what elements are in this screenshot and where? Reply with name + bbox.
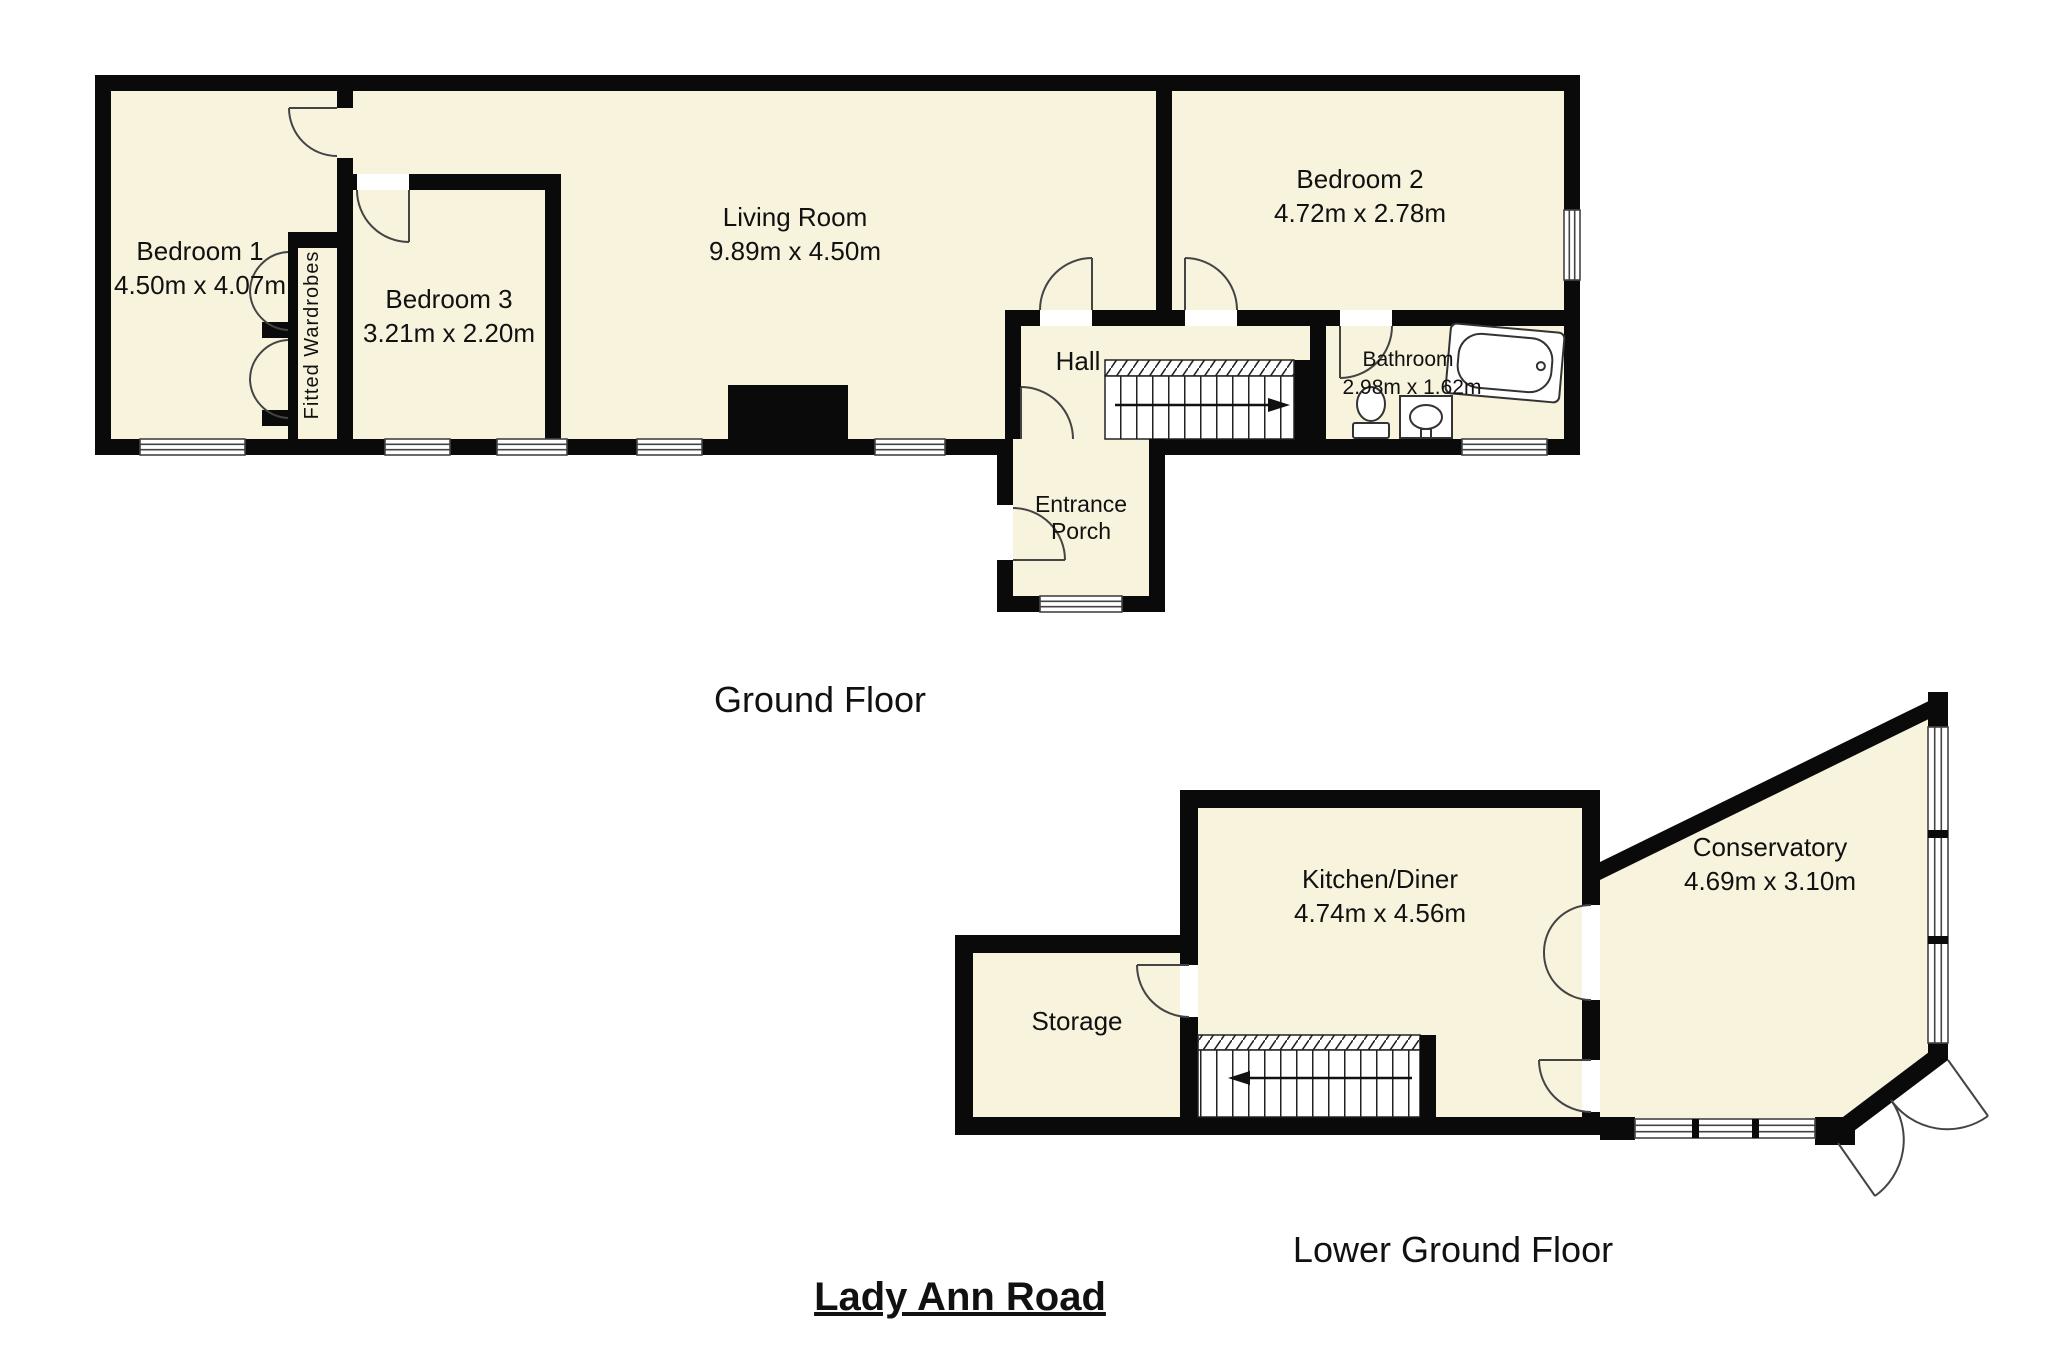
lower-ground-floor-plan: Kitchen/Diner 4.74m x 4.56m Storage Cons… [955, 692, 1988, 1270]
window-icon [875, 439, 945, 455]
kitchen-door-opening [1180, 965, 1198, 1017]
conservatory-label: Conservatory [1693, 832, 1848, 862]
window-icon [140, 439, 245, 455]
ground-floor-plan: Bedroom 1 4.50m x 4.07m Bedroom 3 3.21m … [95, 75, 1580, 720]
kitchen-diner-dims: 4.74m x 4.56m [1294, 898, 1466, 928]
window-icon [1040, 596, 1122, 612]
storage-label: Storage [1031, 1006, 1122, 1036]
window-icon [637, 439, 702, 455]
page-title: Lady Ann Road [814, 1275, 1106, 1319]
bathroom-label: Bathroom [1362, 348, 1453, 371]
bedroom1-dims: 4.50m x 4.07m [114, 270, 286, 300]
lower-ground-floor-stairs [1198, 1035, 1436, 1117]
window-icon [385, 439, 450, 455]
kitchen-diner-label: Kitchen/Diner [1302, 864, 1458, 894]
window-icon [1928, 727, 1948, 1043]
bathroom-dims: 2.98m x 1.62m [1343, 376, 1482, 399]
bedroom2-label: Bedroom 2 [1296, 164, 1423, 194]
window-icon [1564, 210, 1580, 280]
bedroom3-dims: 3.21m x 2.20m [363, 318, 535, 348]
window-icon [497, 439, 567, 455]
chimney-breast [728, 385, 848, 439]
conservatory-dims: 4.69m x 3.10m [1684, 866, 1856, 896]
fitted-wardrobes-label: Fitted Wardrobes [301, 251, 323, 420]
ground-floor-stairs [1105, 360, 1294, 439]
bedroom2-dims: 4.72m x 2.78m [1274, 198, 1446, 228]
lower-ground-floor-title: Lower Ground Floor [1293, 1229, 1613, 1270]
bedroom1-label: Bedroom 1 [136, 236, 263, 266]
entrance-porch-label-line1: Entrance [1035, 491, 1127, 517]
floorplan-drawing: Bedroom 1 4.50m x 4.07m Bedroom 3 3.21m … [0, 0, 2048, 1366]
hall-label: Hall [1056, 346, 1101, 376]
sink-icon [1400, 396, 1452, 438]
bedroom3-label: Bedroom 3 [385, 284, 512, 314]
ground-floor-title: Ground Floor [714, 679, 926, 720]
living-room-label: Living Room [723, 202, 868, 232]
window-icon [1635, 1119, 1815, 1138]
window-icon [1462, 439, 1547, 455]
living-room-dims: 9.89m x 4.50m [709, 236, 881, 266]
conservatory-interior [1600, 716, 1928, 1124]
floorplan-page: Bedroom 1 4.50m x 4.07m Bedroom 3 3.21m … [0, 0, 2048, 1366]
entrance-porch-label-line2: Porch [1051, 518, 1111, 544]
